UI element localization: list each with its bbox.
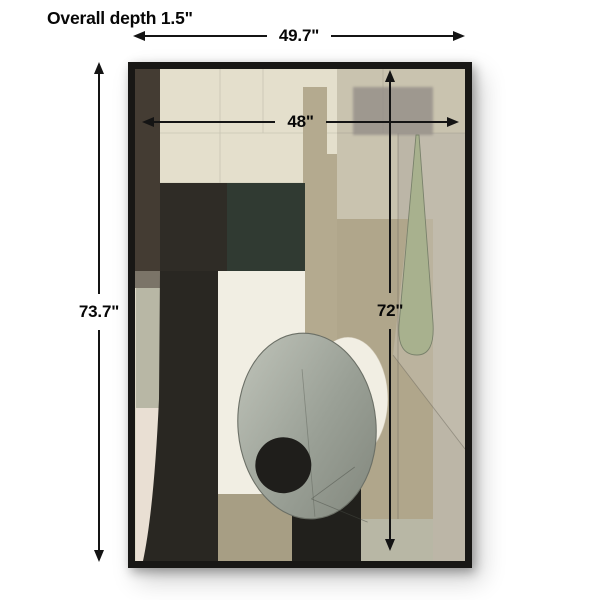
arrow-up-icon xyxy=(385,70,395,82)
canvas-height-label: 72" xyxy=(377,301,403,321)
dimension-line xyxy=(98,330,100,550)
arrow-down-icon xyxy=(94,550,104,562)
dimension-line xyxy=(389,82,391,293)
overall-depth-label: Overall depth 1.5" xyxy=(47,8,193,29)
arrow-right-icon xyxy=(453,31,465,41)
overall-height-dimension: 73.7" xyxy=(77,62,121,562)
arrow-left-icon xyxy=(133,31,145,41)
overall-width-dimension: 49.7" xyxy=(133,28,465,44)
arrow-right-icon xyxy=(447,117,459,127)
overall-height-label: 73.7" xyxy=(79,302,119,322)
dimension-line xyxy=(331,35,453,37)
canvas xyxy=(135,69,465,561)
dimension-line xyxy=(154,121,275,123)
arrow-down-icon xyxy=(385,539,395,551)
dimension-line xyxy=(98,74,100,294)
arrow-up-icon xyxy=(94,62,104,74)
abstract-painting xyxy=(135,69,465,561)
picture-frame xyxy=(128,62,472,568)
overall-width-label: 49.7" xyxy=(279,26,319,46)
product-dimension-diagram: Overall depth 1.5" xyxy=(0,0,600,600)
canvas-width-label: 48" xyxy=(287,112,313,132)
canvas-height-dimension: 72" xyxy=(368,70,412,551)
dimension-line xyxy=(389,329,391,540)
arrow-left-icon xyxy=(142,117,154,127)
dimension-line xyxy=(145,35,267,37)
